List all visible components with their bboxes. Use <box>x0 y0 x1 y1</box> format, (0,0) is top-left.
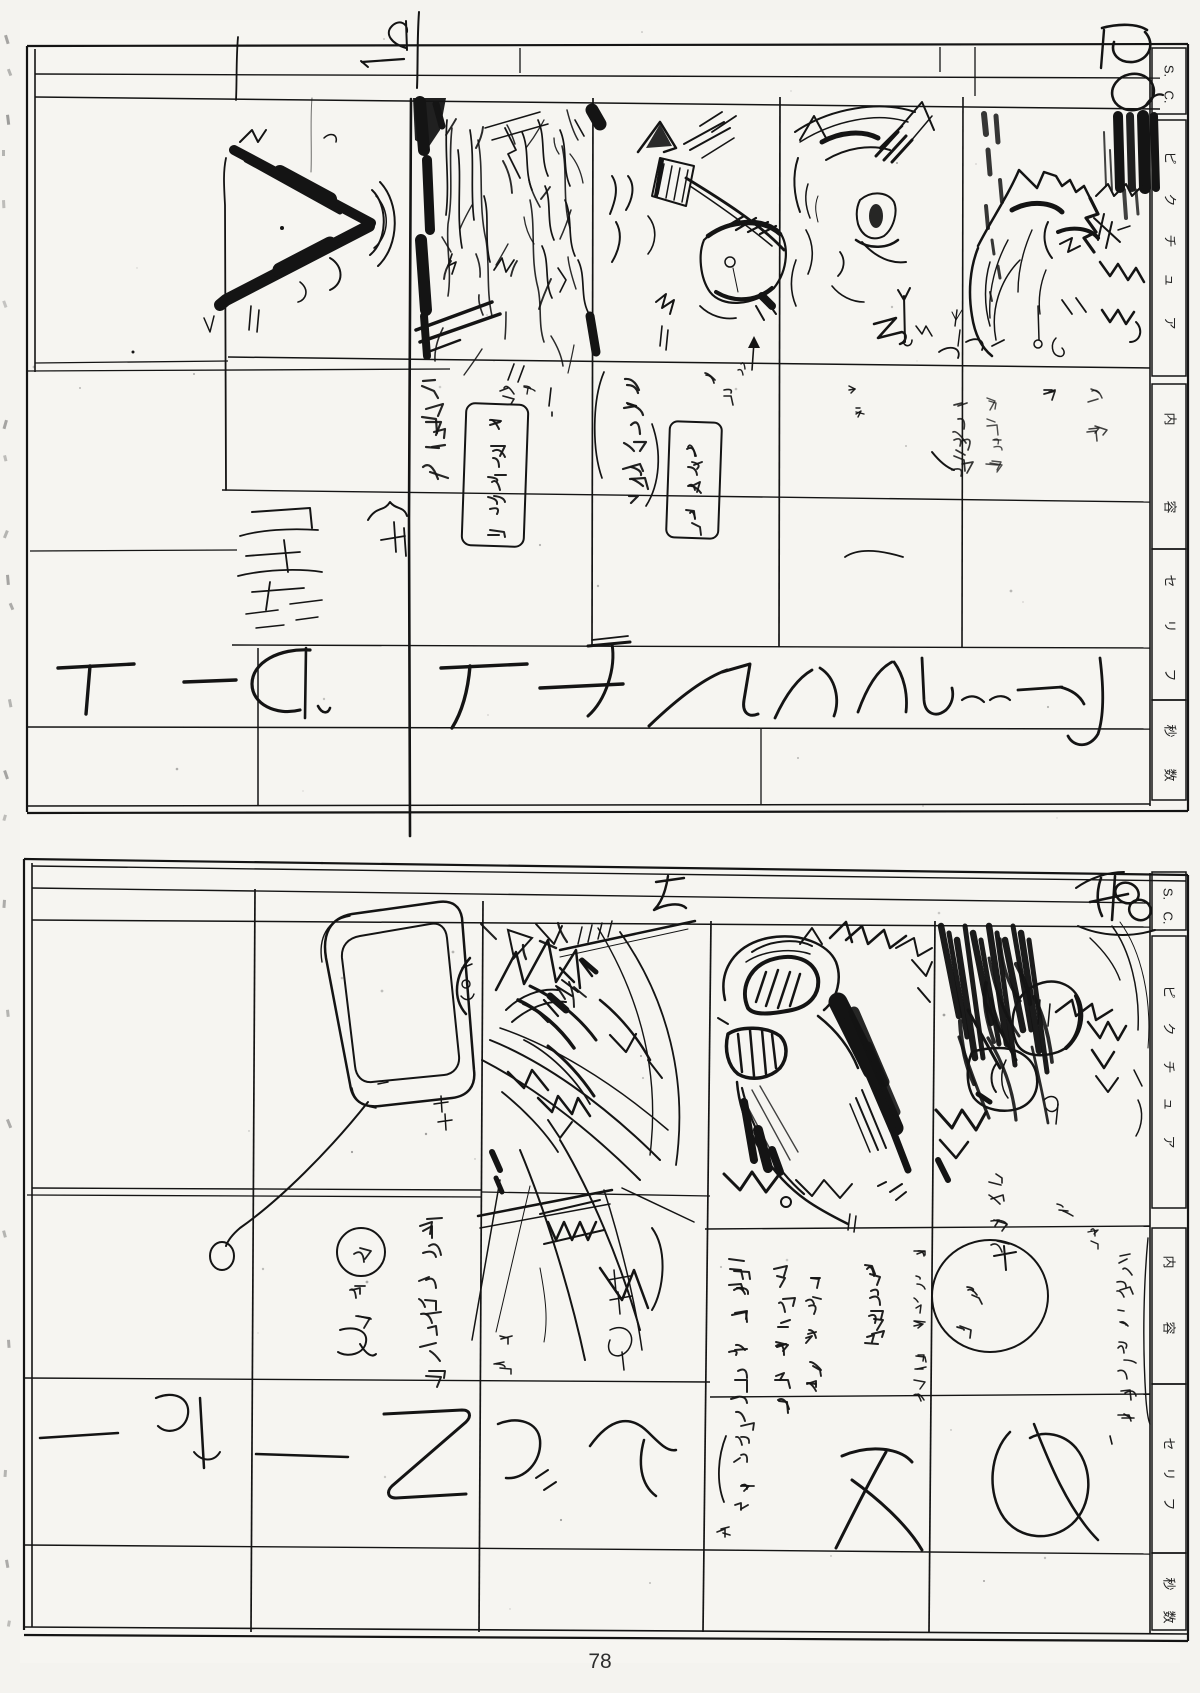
svg-text:リ: リ <box>1163 619 1178 632</box>
svg-text:容: 容 <box>1163 500 1178 513</box>
svg-text:セ: セ <box>1162 1437 1177 1450</box>
svg-text:チ: チ <box>1163 234 1178 247</box>
svg-text:S.: S. <box>1161 888 1176 900</box>
svg-text:チ: チ <box>1162 1060 1177 1073</box>
svg-text:S.: S. <box>1162 65 1177 77</box>
svg-text:C.: C. <box>1162 91 1177 104</box>
svg-text:ピ: ピ <box>1163 151 1178 164</box>
svg-text:ク: ク <box>1162 1022 1177 1035</box>
svg-text:ア: ア <box>1163 316 1178 329</box>
svg-text:秒: 秒 <box>1162 1577 1177 1590</box>
svg-text:78: 78 <box>588 1650 611 1673</box>
svg-text:ュ: ュ <box>1163 273 1178 286</box>
svg-text:フ: フ <box>1163 668 1178 681</box>
svg-text:リ: リ <box>1162 1467 1177 1480</box>
svg-text:フ: フ <box>1162 1497 1177 1510</box>
svg-text:セ: セ <box>1163 574 1178 587</box>
svg-text:C.: C. <box>1161 912 1176 925</box>
svg-text:ピ: ピ <box>1162 985 1177 998</box>
svg-text:容: 容 <box>1162 1321 1177 1334</box>
svg-text:ュ: ュ <box>1162 1097 1177 1110</box>
svg-text:内: 内 <box>1163 412 1178 425</box>
svg-text:ク: ク <box>1163 193 1178 206</box>
svg-text:内: 内 <box>1162 1255 1177 1268</box>
svg-text:ア: ア <box>1162 1135 1177 1148</box>
svg-text:数: 数 <box>1163 768 1178 781</box>
svg-text:秒: 秒 <box>1163 724 1178 737</box>
svg-text:数: 数 <box>1162 1610 1177 1623</box>
